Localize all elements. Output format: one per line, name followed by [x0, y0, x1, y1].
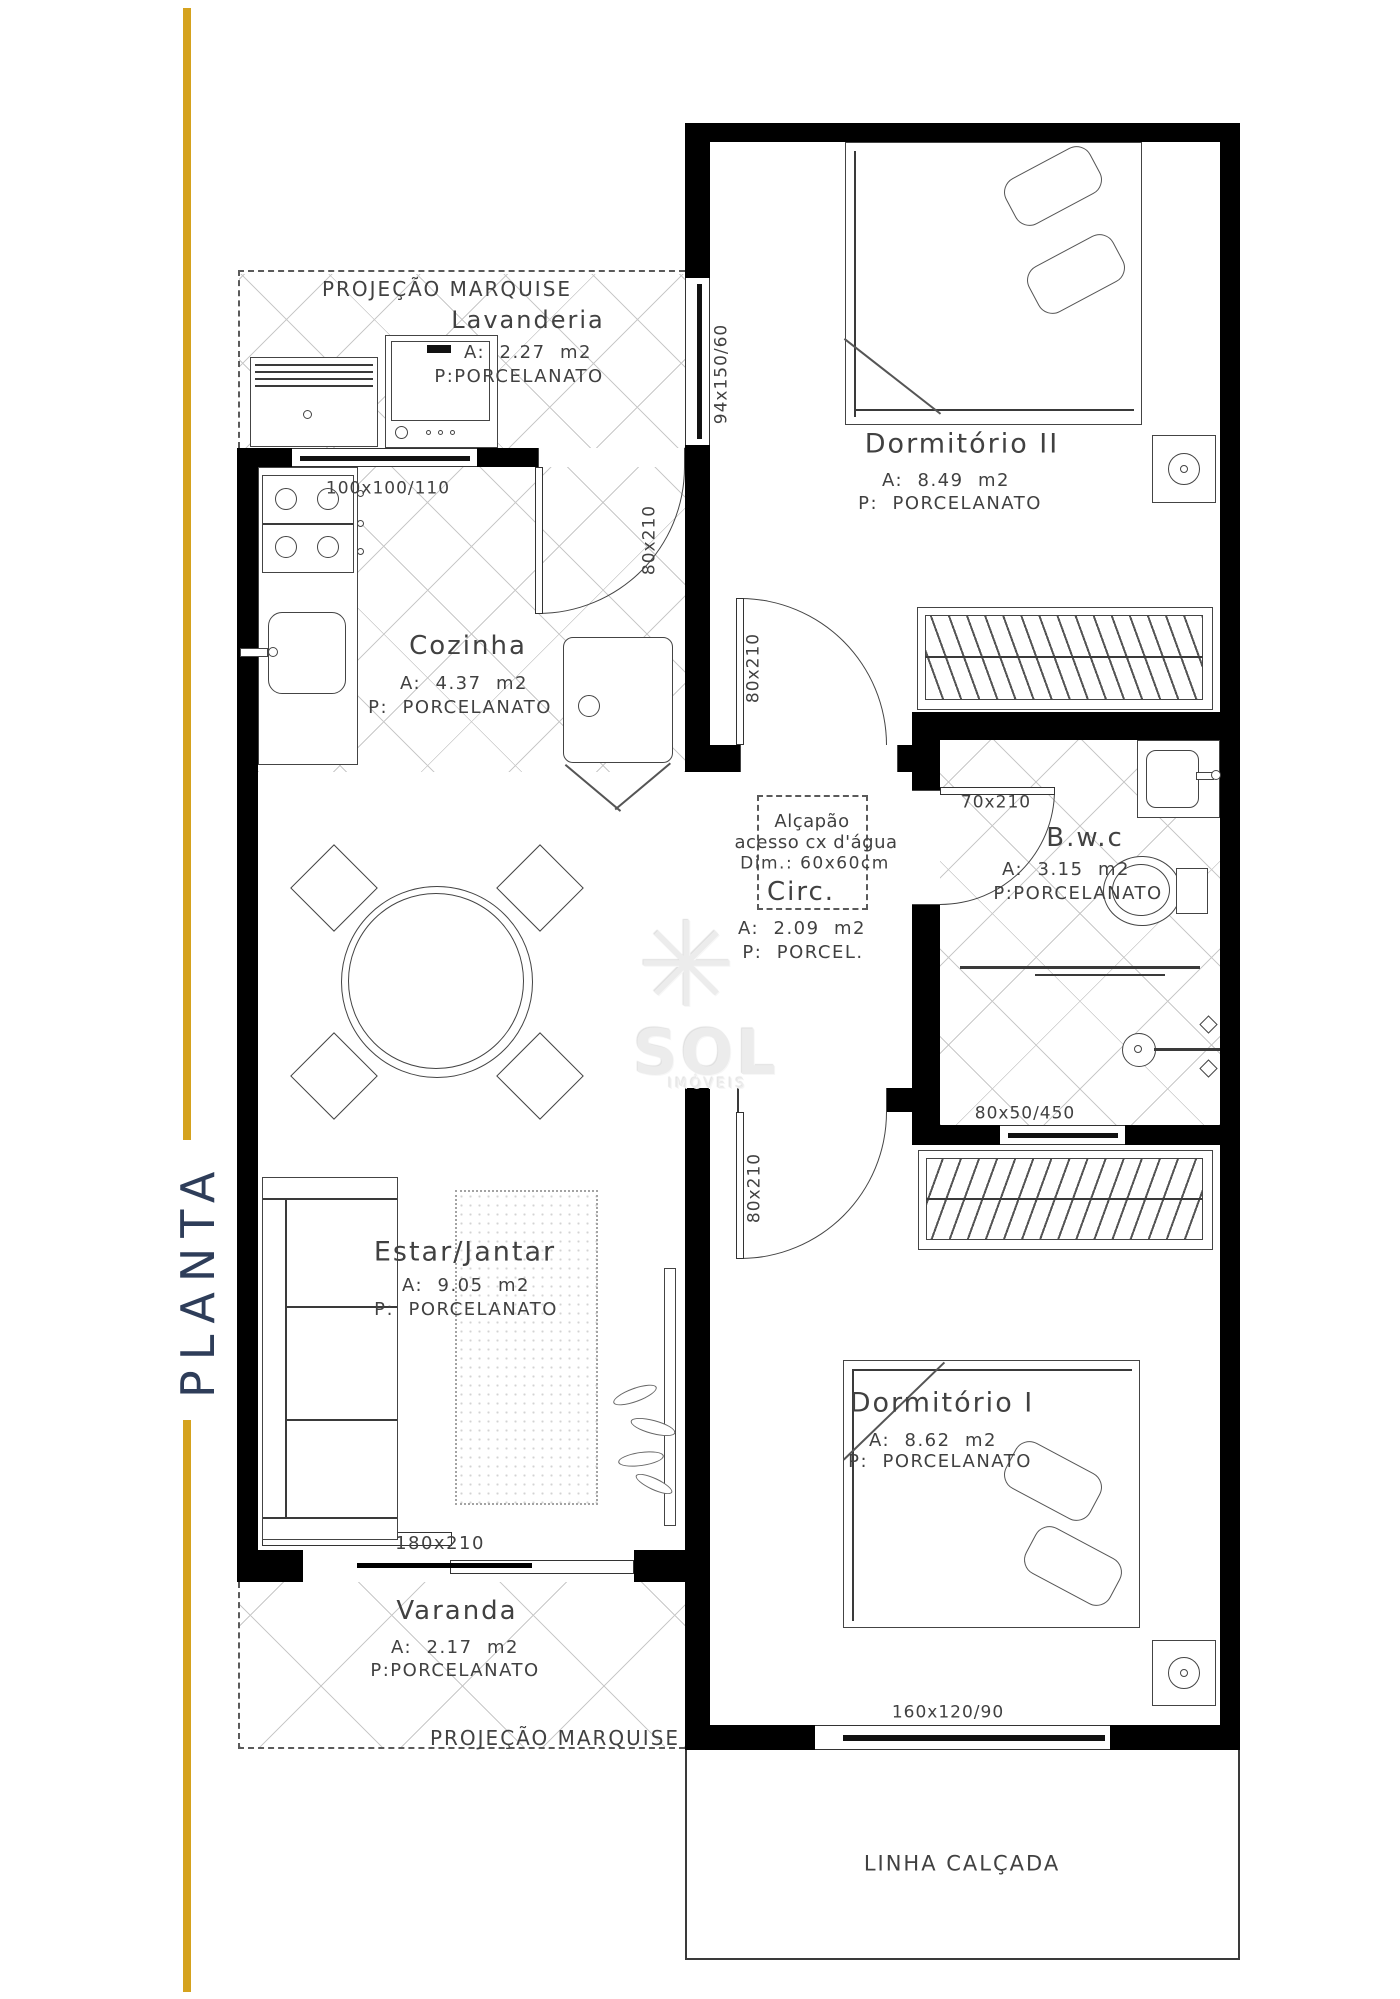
bwc-door-opening	[912, 790, 940, 905]
wall-dorm2-west-lower	[685, 445, 710, 772]
wall-dorm1-bottom-b	[1110, 1725, 1220, 1750]
estar-floor: P: PORCELANATO	[374, 1301, 558, 1319]
dorm2-name: Dormitório II	[865, 431, 1059, 458]
cozinha-name: Cozinha	[409, 633, 527, 659]
marquise-dashed-left-top	[238, 270, 240, 448]
bwc-shower-arm	[1154, 1048, 1220, 1051]
wall-left	[237, 448, 258, 1582]
dorm2-door-dim: 80x210	[746, 633, 763, 703]
dorm1-door-dim: 80x210	[747, 1153, 764, 1223]
bwc-toilet-tank	[1176, 868, 1208, 914]
circ-floor: P: PORCEL.	[742, 944, 863, 962]
accent-rule-top	[183, 8, 191, 1140]
sofa	[262, 1177, 398, 1540]
sidewalk-label: LINHA CALÇADA	[864, 1854, 1060, 1875]
dorm1-window-dim: 160x120/90	[892, 1705, 1004, 1722]
kitchen-window	[292, 448, 477, 467]
lavanderia-name: Lavanderia	[451, 308, 604, 332]
wall-top	[685, 123, 1240, 142]
marquise-dashed-left-bottom	[238, 1582, 240, 1749]
kitchen-faucet	[240, 648, 268, 657]
varanda-floor: P:PORCELANATO	[370, 1662, 539, 1680]
attic-hatch-line3: Dim.: 60x60cm	[740, 856, 890, 873]
kitchen-door-opening	[538, 448, 685, 467]
floorplan-page: PLANTA	[0, 0, 1400, 1999]
kitchen-door-dim: 80x210	[642, 505, 659, 575]
washing-machine-toploader	[250, 357, 378, 447]
cozinha-area: A: 4.37 m2	[400, 675, 528, 693]
marquise-label-bottom: PROJEÇÃO MARQUISE	[430, 1728, 680, 1748]
wall-dorm1-bottom-a	[710, 1725, 815, 1750]
lavanderia-window-dim: 94x150/60	[714, 324, 731, 425]
circ-name: Circ.	[767, 879, 835, 905]
dorm2-door-opening	[740, 745, 898, 772]
page-title: PLANTA	[148, 1160, 248, 1400]
plant-leaf-1	[611, 1381, 659, 1410]
wall-dorm2-bottom	[940, 712, 1220, 740]
dorm2-wardrobe	[917, 607, 1213, 710]
wall-estar-bottom-a	[237, 1550, 303, 1582]
marquise-label-top: PROJEÇÃO MARQUISE	[322, 279, 572, 299]
wall-bwc-bottom-b	[1125, 1125, 1220, 1145]
dorm1-area: A: 8.62 m2	[869, 1432, 997, 1450]
kitchen-sink	[268, 612, 346, 694]
dorm1-floor: P: PORCELANATO	[848, 1453, 1032, 1471]
sliding-door-track	[357, 1563, 532, 1568]
lavanderia-floor: P:PORCELANATO	[434, 368, 603, 386]
marquise-dashed-top	[238, 270, 685, 272]
kitchen-door-leaf	[535, 467, 543, 614]
bwc-window-dim: 80x50/450	[975, 1106, 1076, 1123]
bwc-shower-head	[1122, 1033, 1156, 1067]
dining-chair-se	[496, 1032, 584, 1120]
attic-hatch-line2: acesso cx d'água	[734, 834, 897, 852]
stove-knob-2	[357, 520, 364, 527]
dorm2-area: A: 8.49 m2	[882, 472, 1010, 490]
varanda-area: A: 2.17 m2	[391, 1639, 519, 1657]
accent-rule-bottom	[183, 1420, 191, 1992]
wall-estar-bottom-b	[634, 1550, 710, 1582]
dorm2-floor: P: PORCELANATO	[858, 495, 1042, 513]
dorm1-window	[815, 1725, 1110, 1750]
watermark-brand-sub: IMÓVEIS	[668, 1076, 747, 1092]
bwc-shower-partition-b	[1035, 974, 1165, 976]
estar-area: A: 9.05 m2	[402, 1277, 530, 1295]
bwc-door-dim: 70x210	[961, 795, 1031, 812]
stove-knob-3	[357, 548, 364, 555]
bwc-floor: P:PORCELANATO	[993, 885, 1162, 903]
wall-right	[1220, 123, 1240, 1750]
estar-name: Estar/Jantar	[374, 1239, 556, 1266]
bwc-area: A: 3.15 m2	[1002, 861, 1130, 879]
varanda-name: Varanda	[396, 1598, 517, 1624]
wall-laundry-kitchen-b	[477, 448, 538, 467]
wall-circ-top-a	[685, 745, 740, 772]
lavanderia-area: A: 2.27 m2	[464, 344, 592, 362]
bwc-vanity-faucet-knob	[1211, 770, 1221, 780]
dorm1-wardrobe	[918, 1150, 1213, 1250]
kitchen-window-dim: 100x100/110	[326, 481, 450, 498]
attic-hatch-title: Alçapão	[774, 813, 849, 831]
cozinha-floor: P: PORCELANATO	[368, 699, 552, 717]
wall-circ-bottom-east	[887, 1088, 940, 1112]
circ-area: A: 2.09 m2	[738, 920, 866, 938]
dorm1-nightstand	[1152, 1640, 1216, 1706]
dining-table	[341, 886, 533, 1078]
bwc-window	[1000, 1125, 1125, 1145]
wall-dorm2-west-upper	[685, 123, 710, 278]
wall-estar-east	[685, 1088, 710, 1750]
dorm2-nightstand	[1152, 435, 1216, 503]
bwc-name: B.w.c	[1046, 825, 1124, 851]
bwc-shower-partition-a	[960, 966, 1200, 969]
plant-leaf-3	[617, 1449, 665, 1469]
dorm1-name: Dormitório I	[850, 1390, 1035, 1417]
watermark-star-icon: ✳	[637, 896, 736, 1034]
lavanderia-window	[685, 278, 710, 445]
refrigerator	[563, 637, 673, 763]
dorm1-door-leaf	[736, 1112, 744, 1259]
kitchen-faucet-knob	[268, 647, 278, 657]
wall-bwc-bottom-a	[940, 1125, 1000, 1145]
wall-bwc-west-upper	[912, 712, 940, 790]
sliding-door-dim: 180x210	[395, 1535, 485, 1553]
